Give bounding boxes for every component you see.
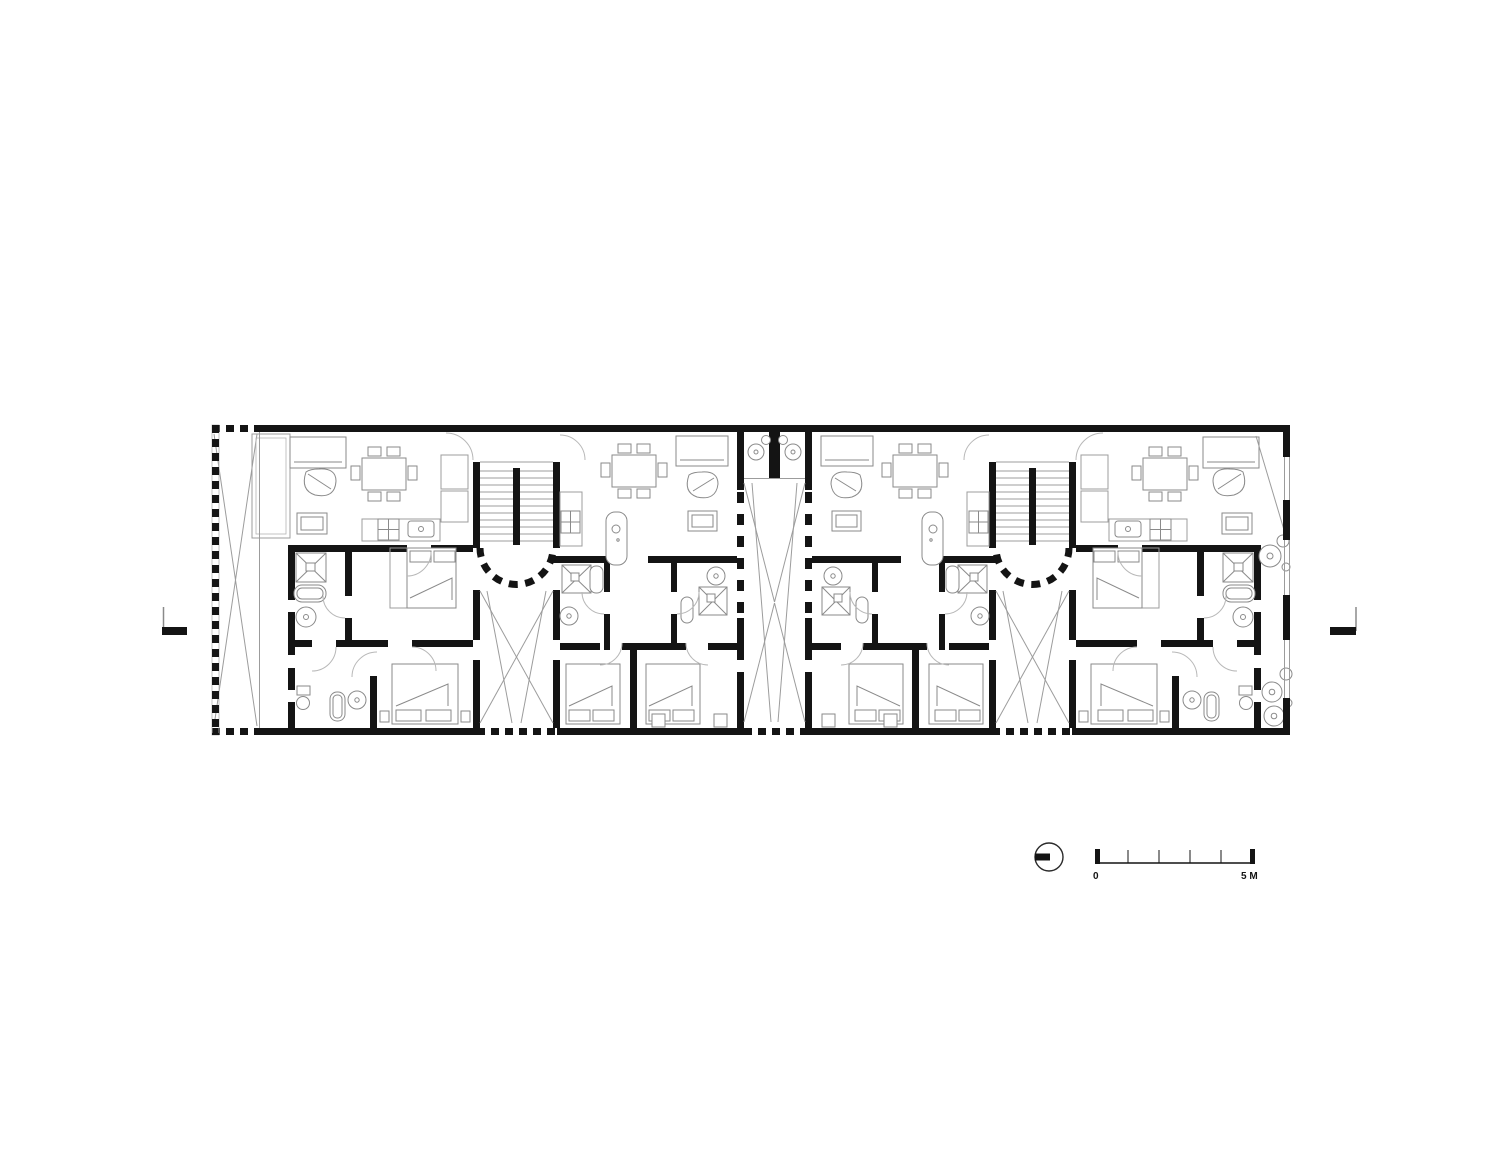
service-strip-right — [1256, 436, 1292, 726]
drawing-sheet: 0 5 M — [0, 0, 1500, 1159]
north-arrow-icon — [1035, 843, 1063, 871]
unit-pair-right — [775, 432, 1290, 728]
top-wall — [259, 425, 1290, 432]
scale-bar: 0 5 M — [1093, 849, 1258, 882]
planter — [252, 434, 290, 538]
section-marker-left-icon — [162, 607, 187, 635]
floor-plan: 0 5 M — [0, 0, 1500, 1159]
boiler-fixtures-upper — [1259, 535, 1290, 571]
scale-zero-label: 0 — [1093, 871, 1099, 882]
section-marker-right-icon — [1330, 607, 1356, 635]
unit-pair-left — [260, 432, 775, 728]
scale-max-label: 5 M — [1241, 871, 1258, 882]
terrace-left — [214, 434, 290, 726]
